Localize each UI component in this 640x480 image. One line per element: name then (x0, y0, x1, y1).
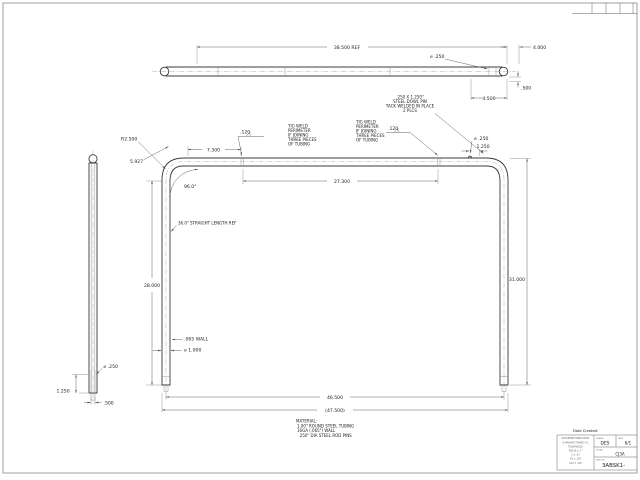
detail-value: CJ3A (615, 451, 625, 456)
title-block: Date Created: WOLVERINE FABRICATING & MA… (557, 429, 637, 470)
dim-wall: .065 WALL (184, 337, 209, 343)
revision-strip-lines (572, 3, 637, 14)
company-line: ANGLE ± 1° (569, 450, 582, 453)
dim-overall-length: 38.500 REF (334, 45, 361, 51)
frame-centerline (166, 162, 504, 392)
company-line: X ± .03 (571, 454, 580, 457)
dim-diagonal: 5.927 (130, 159, 143, 165)
front-view: R2.500 5.927 7.300 96.0° 27.300 ⌀ .250 1… (121, 136, 531, 414)
drawn-value: DES (601, 441, 610, 447)
top-view-extension-lines (91, 0, 521, 100)
company-line: TOLERANCES: (568, 445, 584, 448)
leader-line (171, 226, 177, 232)
dim-height: 31.000 (509, 277, 525, 283)
extension-lines (72, 375, 88, 394)
dim-pin-dia-top: ⌀ .250 (430, 54, 445, 60)
company-line: XXX ± .005 (569, 462, 582, 465)
material-line: .250" DIA STEEL ROD PINS (299, 433, 353, 438)
date-created-label: Date Created: (573, 429, 598, 433)
dim-tangent: 7.300 (207, 147, 220, 153)
dwg-number-label: DWG NO (596, 459, 605, 461)
leader-line (445, 59, 488, 69)
note-line: 2 PLCS (403, 108, 417, 113)
dim-pin-width: .500 (104, 400, 114, 406)
side-view: ⌀ .250 1.250 .500 (57, 151, 119, 407)
leader-line (238, 137, 242, 156)
material-note: MATERIAL: 1.00" ROUND STEEL TUBING 16GA … (296, 419, 354, 438)
weld-size-left: .120 (240, 130, 250, 136)
company-line: XX ± .010 (570, 458, 582, 461)
dim-joint-span: 27.300 (334, 179, 350, 185)
dim-tube-dia: ⌀ 1.000 (184, 348, 201, 354)
drawing-sheet: 38.500 REF 4.000 ⌀ .250 .500 4.500 .250 … (0, 0, 640, 480)
dim-pin-dia-front: ⌀ .250 (474, 136, 489, 142)
leader-line (410, 133, 438, 156)
dim-pin-dia-side: ⌀ .250 (104, 364, 119, 370)
dim-pin-engagement: 1.250 (57, 389, 70, 395)
dim-outer-width: (47.500) (325, 408, 345, 414)
dwg-number-value: 3ABSK1- (602, 463, 625, 469)
dim-pin-loc-top: 4.500 (482, 96, 495, 102)
note-straight-length: 36.0" STRAIGHT LENGTH REF (178, 221, 237, 226)
note-line: OF TUBING (356, 138, 378, 143)
dim-offset: .500 (521, 86, 531, 92)
frame-inner (170, 166, 500, 385)
dim-pin-loc-front: 1.250 (477, 144, 490, 150)
bottom-pin-stubs (162, 377, 508, 392)
dim-end: 4.000 (533, 45, 546, 51)
drawn-label: DRAWN (596, 437, 604, 440)
top-view: 38.500 REF 4.000 ⌀ .250 .500 4.500 (91, 0, 546, 102)
company-line: WOLVERINE FABRICATING (561, 437, 589, 440)
weld-callout-right: TIG WELD PERIMETER IF JOINING THREE PIEC… (355, 120, 438, 156)
drawing-canvas: 38.500 REF 4.000 ⌀ .250 .500 4.500 .250 … (0, 0, 640, 480)
revision-strip (572, 3, 637, 14)
tube-joint-ticks (241, 158, 440, 166)
note-line: OF TUBING (288, 142, 310, 147)
date-label: DATE (618, 437, 624, 440)
leader-line (144, 147, 169, 160)
detail-label: DETAIL (596, 448, 604, 451)
company-line: & MANUFACTURING CO. (562, 441, 588, 444)
extension-lines (146, 181, 162, 385)
extension-lines (510, 159, 531, 386)
frame-ends-and-pin-bump (162, 156, 508, 385)
frame-outer (162, 158, 508, 385)
dim-inner-width: 46.500 (327, 395, 343, 401)
dim-corner-radius: R2.500 (121, 137, 137, 143)
weld-callout-left: .120 TIG WELD PERIMETER IF JOINING THREE… (238, 124, 317, 156)
weld-size-right: .120 (388, 126, 398, 132)
dim-bend-angle: 96.0° (184, 184, 197, 190)
dome-pin-note: .250 X 1.250" STEEL DOWL PIN TACK WELDED… (385, 95, 484, 154)
date-value: 6/1 (625, 441, 632, 446)
dim-leg-length: 28.000 (144, 283, 160, 289)
